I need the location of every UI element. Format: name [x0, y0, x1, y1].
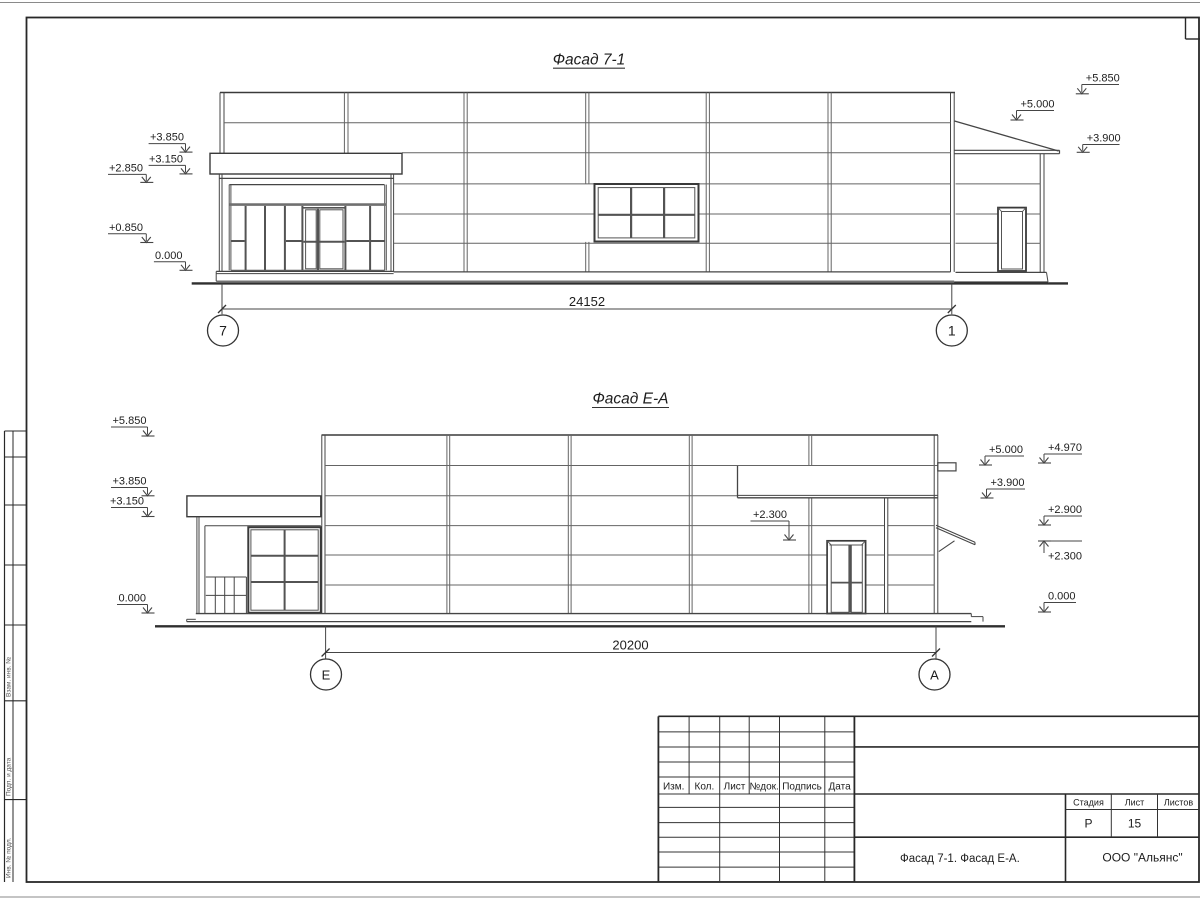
- svg-text:Подп. и дата: Подп. и дата: [6, 757, 13, 796]
- svg-text:Лист: Лист: [1125, 798, 1145, 808]
- svg-text:+3.900: +3.900: [1087, 133, 1121, 145]
- svg-text:+3.850: +3.850: [113, 476, 147, 488]
- svg-text:+3.850: +3.850: [150, 132, 184, 144]
- svg-text:Е: Е: [322, 668, 331, 683]
- svg-text:1: 1: [948, 323, 956, 339]
- svg-text:Стадия: Стадия: [1073, 798, 1104, 808]
- svg-text:Взам. инв. №: Взам. инв. №: [6, 657, 13, 697]
- svg-text:+3.900: +3.900: [991, 477, 1025, 489]
- svg-text:+5.850: +5.850: [1086, 73, 1120, 85]
- svg-text:Фасад 7-1. Фасад Е-А.: Фасад 7-1. Фасад Е-А.: [900, 853, 1020, 865]
- svg-text:+2.300: +2.300: [1048, 551, 1082, 563]
- svg-text:+3.150: +3.150: [149, 153, 183, 165]
- svg-text:15: 15: [1128, 817, 1142, 831]
- svg-text:Дата: Дата: [829, 782, 852, 793]
- svg-text:24152: 24152: [569, 294, 605, 309]
- svg-text:ООО "Альянс": ООО "Альянс": [1102, 851, 1182, 865]
- svg-text:+2.900: +2.900: [1048, 504, 1082, 516]
- svg-text:+3.150: +3.150: [110, 496, 144, 508]
- svg-text:0.000: 0.000: [155, 250, 183, 262]
- svg-text:Кол.: Кол.: [695, 782, 715, 793]
- svg-text:Подпись: Подпись: [782, 782, 822, 793]
- svg-text:Инв. № подл.: Инв. № подл.: [6, 837, 13, 878]
- svg-text:+2.850: +2.850: [109, 162, 143, 174]
- svg-text:Р: Р: [1084, 817, 1092, 831]
- svg-text:Листов: Листов: [1164, 798, 1193, 808]
- svg-text:Фасад 7-1: Фасад 7-1: [553, 52, 626, 69]
- svg-text:Лист: Лист: [724, 782, 746, 793]
- svg-text:7: 7: [219, 323, 227, 339]
- svg-text:Изм.: Изм.: [663, 782, 684, 793]
- svg-text:+2.300: +2.300: [753, 509, 787, 521]
- svg-text:+5.000: +5.000: [989, 444, 1023, 456]
- svg-text:0.000: 0.000: [119, 593, 147, 605]
- svg-text:Фасад Е-А: Фасад Е-А: [592, 391, 668, 408]
- svg-text:+5.850: +5.850: [113, 415, 147, 427]
- svg-text:+0.850: +0.850: [109, 222, 143, 234]
- svg-text:20200: 20200: [612, 638, 648, 653]
- svg-text:+5.000: +5.000: [1021, 99, 1055, 111]
- svg-text:№док.: №док.: [750, 782, 779, 793]
- svg-text:0.000: 0.000: [1048, 591, 1076, 603]
- svg-text:А: А: [930, 668, 939, 683]
- svg-text:+4.970: +4.970: [1048, 442, 1082, 454]
